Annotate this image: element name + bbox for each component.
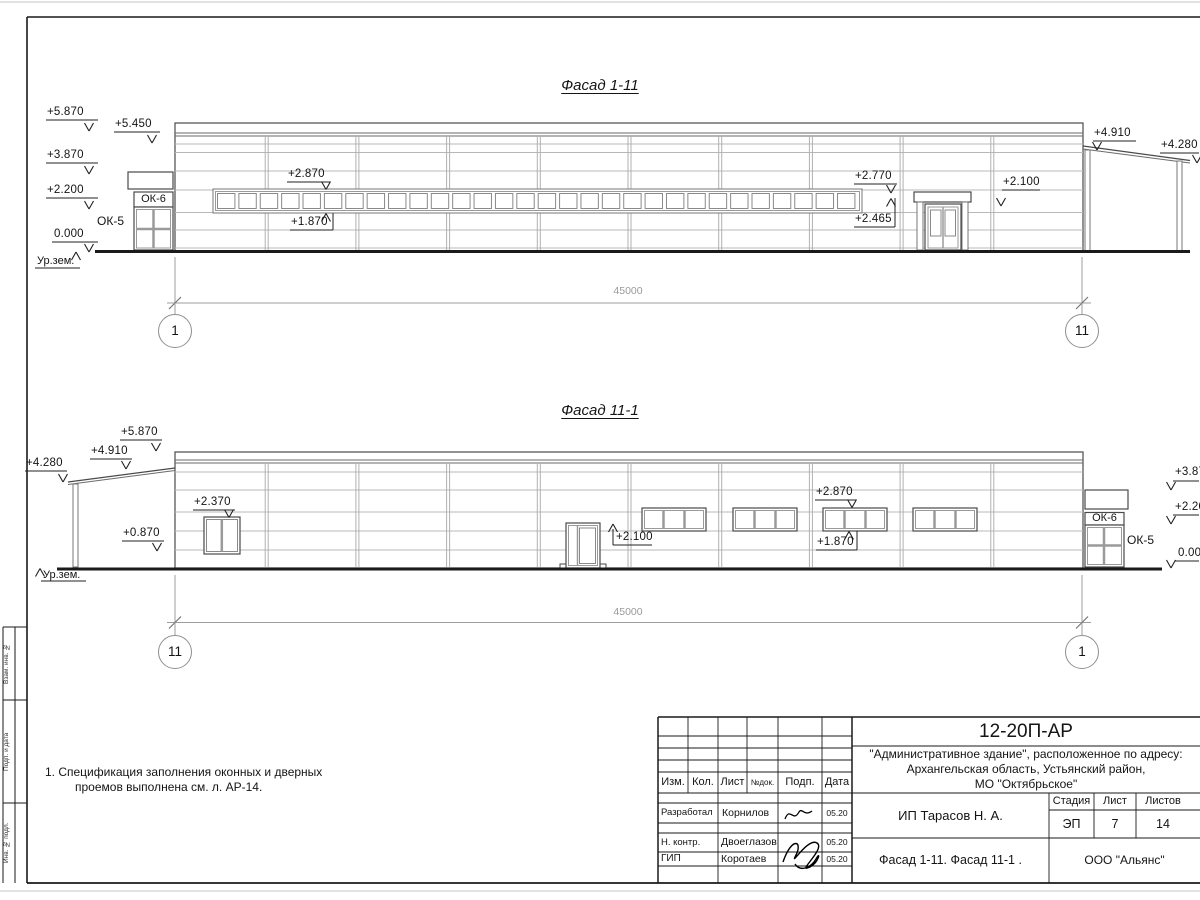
level-mark: +5.870: [121, 426, 158, 438]
role-ncontrol: Н. контр.: [661, 833, 700, 852]
level-mark: +5.450: [115, 118, 152, 130]
level-mark: +1.870: [291, 216, 328, 228]
note-line-2: проемов выполнена см. л. АР-14.: [75, 780, 262, 794]
window-tag-ok5: ОК-5: [97, 214, 124, 228]
facade1-title: Фасад 1-11: [515, 77, 685, 94]
level-mark: +2.200: [47, 184, 84, 196]
header-data: Дата: [822, 772, 852, 793]
level-mark: +2.100: [616, 531, 653, 543]
level-mark: +2.870: [816, 486, 853, 498]
ground-level-label: Ур.зем.: [37, 255, 74, 267]
header-sheets: Листов: [1136, 793, 1190, 810]
level-mark: +4.280: [26, 457, 63, 469]
level-mark: +0.870: [123, 527, 160, 539]
project-address-3: МО "Октябрьское": [852, 777, 1200, 791]
level-mark: +2.100: [1003, 176, 1040, 188]
level-mark: +1.870: [817, 536, 854, 548]
name-developer: Корнилов: [722, 803, 769, 823]
side-stamp-label: Взам. инв. №: [3, 628, 15, 699]
level-mark: +2.870: [288, 168, 325, 180]
date-ncontrol: 05.20: [822, 833, 852, 852]
level-mark: +2.465: [855, 213, 892, 225]
header-ndok: №док.: [747, 772, 778, 793]
axis-bubble-11: 11: [159, 644, 191, 659]
drawing-sheet: Фасад 1-11 +5.870 +5.450 +3.870 +2.200 0…: [0, 0, 1200, 900]
dimension-value: 45000: [528, 285, 728, 297]
doc-code: 12-20П-АР: [852, 717, 1200, 746]
header-stage: Стадия: [1049, 793, 1094, 810]
side-stamp-label: Подп. и дата: [3, 701, 15, 802]
sheet-title: Фасад 1-11. Фасад 11-1 .: [852, 838, 1049, 883]
stage-value: ЭП: [1049, 810, 1094, 838]
axis-bubble-1: 1: [1066, 644, 1098, 659]
header-list: Лист: [718, 772, 747, 793]
side-stamp-label: Инв. № подл.: [3, 804, 15, 882]
window-tag-ok6: ОК-6: [134, 193, 173, 205]
company-name: ООО "Альянс": [1049, 838, 1200, 883]
header-kol: Кол.: [688, 772, 718, 793]
date-developer: 05.20: [822, 803, 852, 823]
date-gip: 05.20: [822, 852, 852, 866]
level-mark: 0.000: [54, 228, 84, 240]
project-address-1: "Административное здание", расположенное…: [852, 747, 1200, 761]
name-ncontrol: Двоеглазов: [721, 833, 777, 852]
level-mark: +5.870: [47, 106, 84, 118]
level-mark: +4.910: [91, 445, 128, 457]
window-tag-ok5: ОК-5: [1127, 533, 1154, 547]
sheet-number: 7: [1094, 810, 1136, 838]
header-podp: Подп.: [778, 772, 822, 793]
axis-bubble-1: 1: [159, 323, 191, 338]
sheets-total: 14: [1136, 810, 1190, 838]
client-name: ИП Тарасов Н. А.: [852, 793, 1049, 838]
project-address-2: Архангельская область, Устьянский район,: [852, 762, 1200, 776]
level-mark: 0.000: [1178, 547, 1200, 559]
window-tag-ok6: ОК-6: [1085, 512, 1124, 524]
header-izm: Изм.: [658, 772, 688, 793]
dimension-value: 45000: [528, 606, 728, 618]
role-gip: ГИП: [661, 852, 681, 866]
level-mark: +3.870: [47, 149, 84, 161]
level-mark: +3.870: [1175, 466, 1200, 478]
level-mark: +2.370: [194, 496, 231, 508]
ground-level-label: Ур.зем.: [43, 569, 80, 581]
facade2-title: Фасад 11-1: [515, 402, 685, 419]
level-mark: +2.200: [1175, 501, 1200, 513]
name-gip: Коротаев: [721, 852, 766, 866]
level-mark: +4.910: [1094, 127, 1131, 139]
level-mark: +4.280: [1161, 139, 1198, 151]
level-mark: +2.770: [855, 170, 892, 182]
note-line-1: 1. Спецификация заполнения оконных и две…: [45, 765, 322, 779]
axis-bubble-11: 11: [1066, 323, 1098, 338]
role-developer: Разработал: [661, 803, 713, 823]
header-sheet: Лист: [1094, 793, 1136, 810]
